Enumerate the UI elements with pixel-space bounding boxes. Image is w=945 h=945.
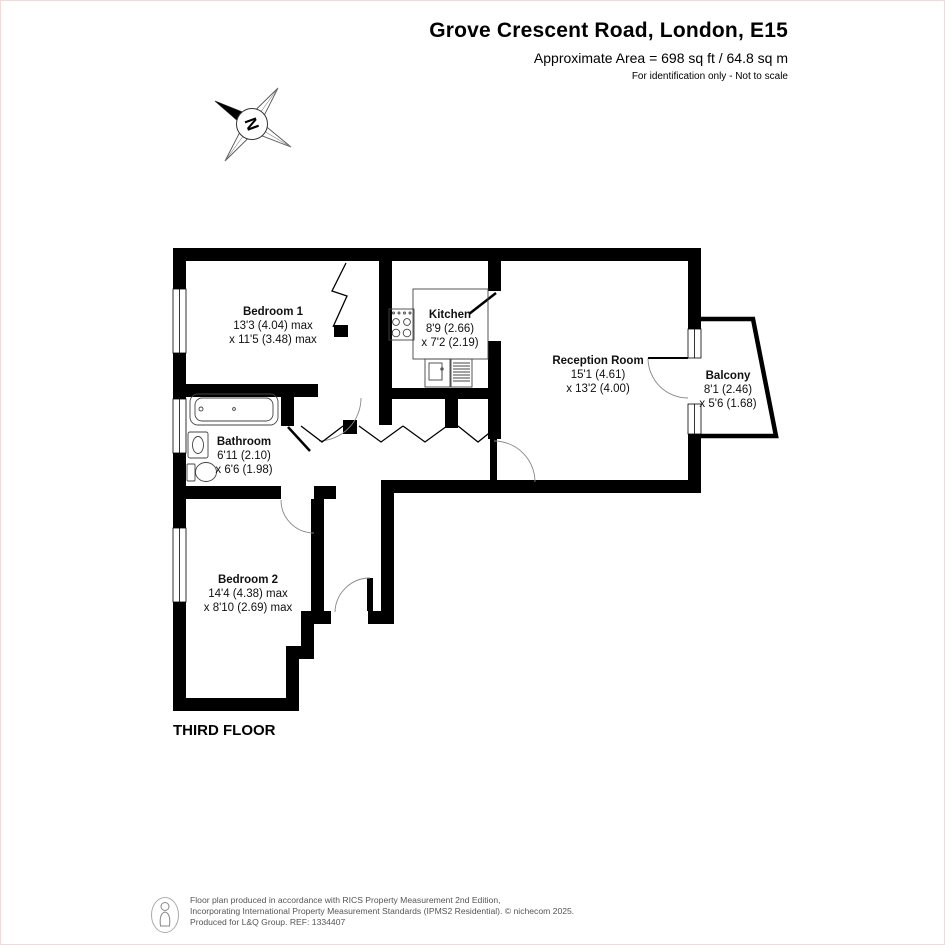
door-arc-reception: [494, 441, 535, 482]
wardrobe-door-bedroom1: [332, 263, 347, 327]
label-reception-dim2: x 13'2 (4.00): [566, 383, 630, 395]
label-bedroom2-dim2: x 8'10 (2.69) max: [204, 602, 293, 614]
cupboard-door-2: [359, 426, 403, 442]
label-bedroom1-dim2: x 11'5 (3.48) max: [229, 334, 317, 346]
label-balcony-name: Balcony: [706, 370, 751, 382]
label-reception-name: Reception Room: [552, 355, 643, 367]
label-bedroom2-name: Bedroom 2: [218, 574, 278, 586]
label-bedroom2-dim1: 14'4 (4.38) max: [208, 588, 288, 600]
floor-label: THIRD FLOOR: [173, 722, 276, 739]
label-bathroom-dim2: x 6'6 (1.98): [215, 464, 272, 476]
label-balcony-dim1: 8'1 (2.46): [704, 384, 752, 396]
floor-plan-page: Grove Crescent Road, London, E15 Approxi…: [0, 0, 945, 945]
cupboard-door-3: [403, 426, 447, 442]
label-bedroom1-name: Bedroom 1: [243, 306, 304, 318]
door-arc-bedroom2: [281, 500, 314, 533]
floor-plan-drawing: N: [1, 1, 944, 944]
door-arc-balcony: [648, 358, 688, 398]
toilet-icon: [187, 464, 195, 481]
nichecom-logo-icon: [149, 895, 183, 935]
footer-line-3: Produced for L&Q Group. REF: 1334407: [190, 917, 574, 928]
door-arc-hallway: [319, 398, 361, 441]
basin-icon: [188, 432, 208, 458]
label-bathroom-dim1: 6'11 (2.10): [217, 450, 271, 462]
door-arc-entrance: [335, 578, 370, 612]
label-bedroom1-dim1: 13'3 (4.04) max: [233, 320, 313, 332]
footer-line-2: Incorporating International Property Mea…: [190, 906, 574, 917]
label-balcony-dim2: x 5'6 (1.68): [699, 398, 756, 410]
cupboard-door-1: [301, 426, 343, 442]
room-labels: Bedroom 1 13'3 (4.04) max x 11'5 (3.48) …: [204, 306, 757, 614]
label-bathroom-name: Bathroom: [217, 436, 271, 448]
label-kitchen-dim1: 8'9 (2.66): [426, 323, 474, 335]
footer-text: Floor plan produced in accordance with R…: [190, 895, 574, 928]
doors: [281, 263, 688, 612]
compass-rose-icon: N: [215, 88, 291, 161]
label-kitchen-dim2: x 7'2 (2.19): [421, 337, 478, 349]
footer: Floor plan produced in accordance with R…: [149, 895, 574, 935]
footer-line-1: Floor plan produced in accordance with R…: [190, 895, 574, 906]
door-leaf-kitchen: [469, 293, 496, 314]
label-reception-dim1: 15'1 (4.61): [571, 369, 626, 381]
label-kitchen-name: Kitchen: [429, 309, 471, 321]
